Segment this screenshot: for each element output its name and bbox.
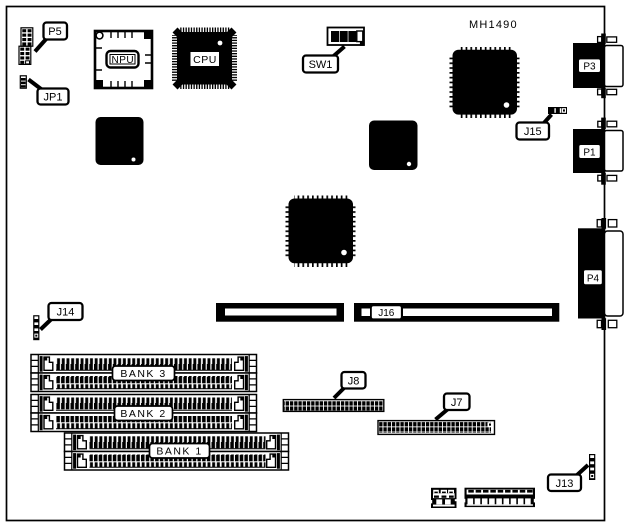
svg-text:MH1490: MH1490 [469, 19, 518, 31]
svg-text:SW1: SW1 [309, 59, 333, 71]
svg-text:P5: P5 [48, 26, 61, 38]
svg-text:J16: J16 [378, 308, 395, 319]
svg-text:BANK 2: BANK 2 [120, 408, 166, 420]
svg-text:P4: P4 [587, 273, 600, 284]
svg-text:BANK 1: BANK 1 [156, 446, 202, 458]
svg-text:J7: J7 [451, 397, 463, 409]
svg-text:J8: J8 [348, 376, 360, 388]
svg-text:NPU: NPU [111, 55, 134, 66]
svg-text:CPU: CPU [193, 54, 217, 66]
svg-text:P3: P3 [583, 62, 596, 73]
svg-text:JP1: JP1 [44, 92, 63, 104]
svg-text:J15: J15 [524, 126, 542, 138]
svg-text:J14: J14 [57, 307, 75, 319]
svg-text:P1: P1 [583, 147, 596, 158]
svg-text:BANK 3: BANK 3 [120, 368, 166, 380]
svg-text:J13: J13 [556, 478, 574, 490]
